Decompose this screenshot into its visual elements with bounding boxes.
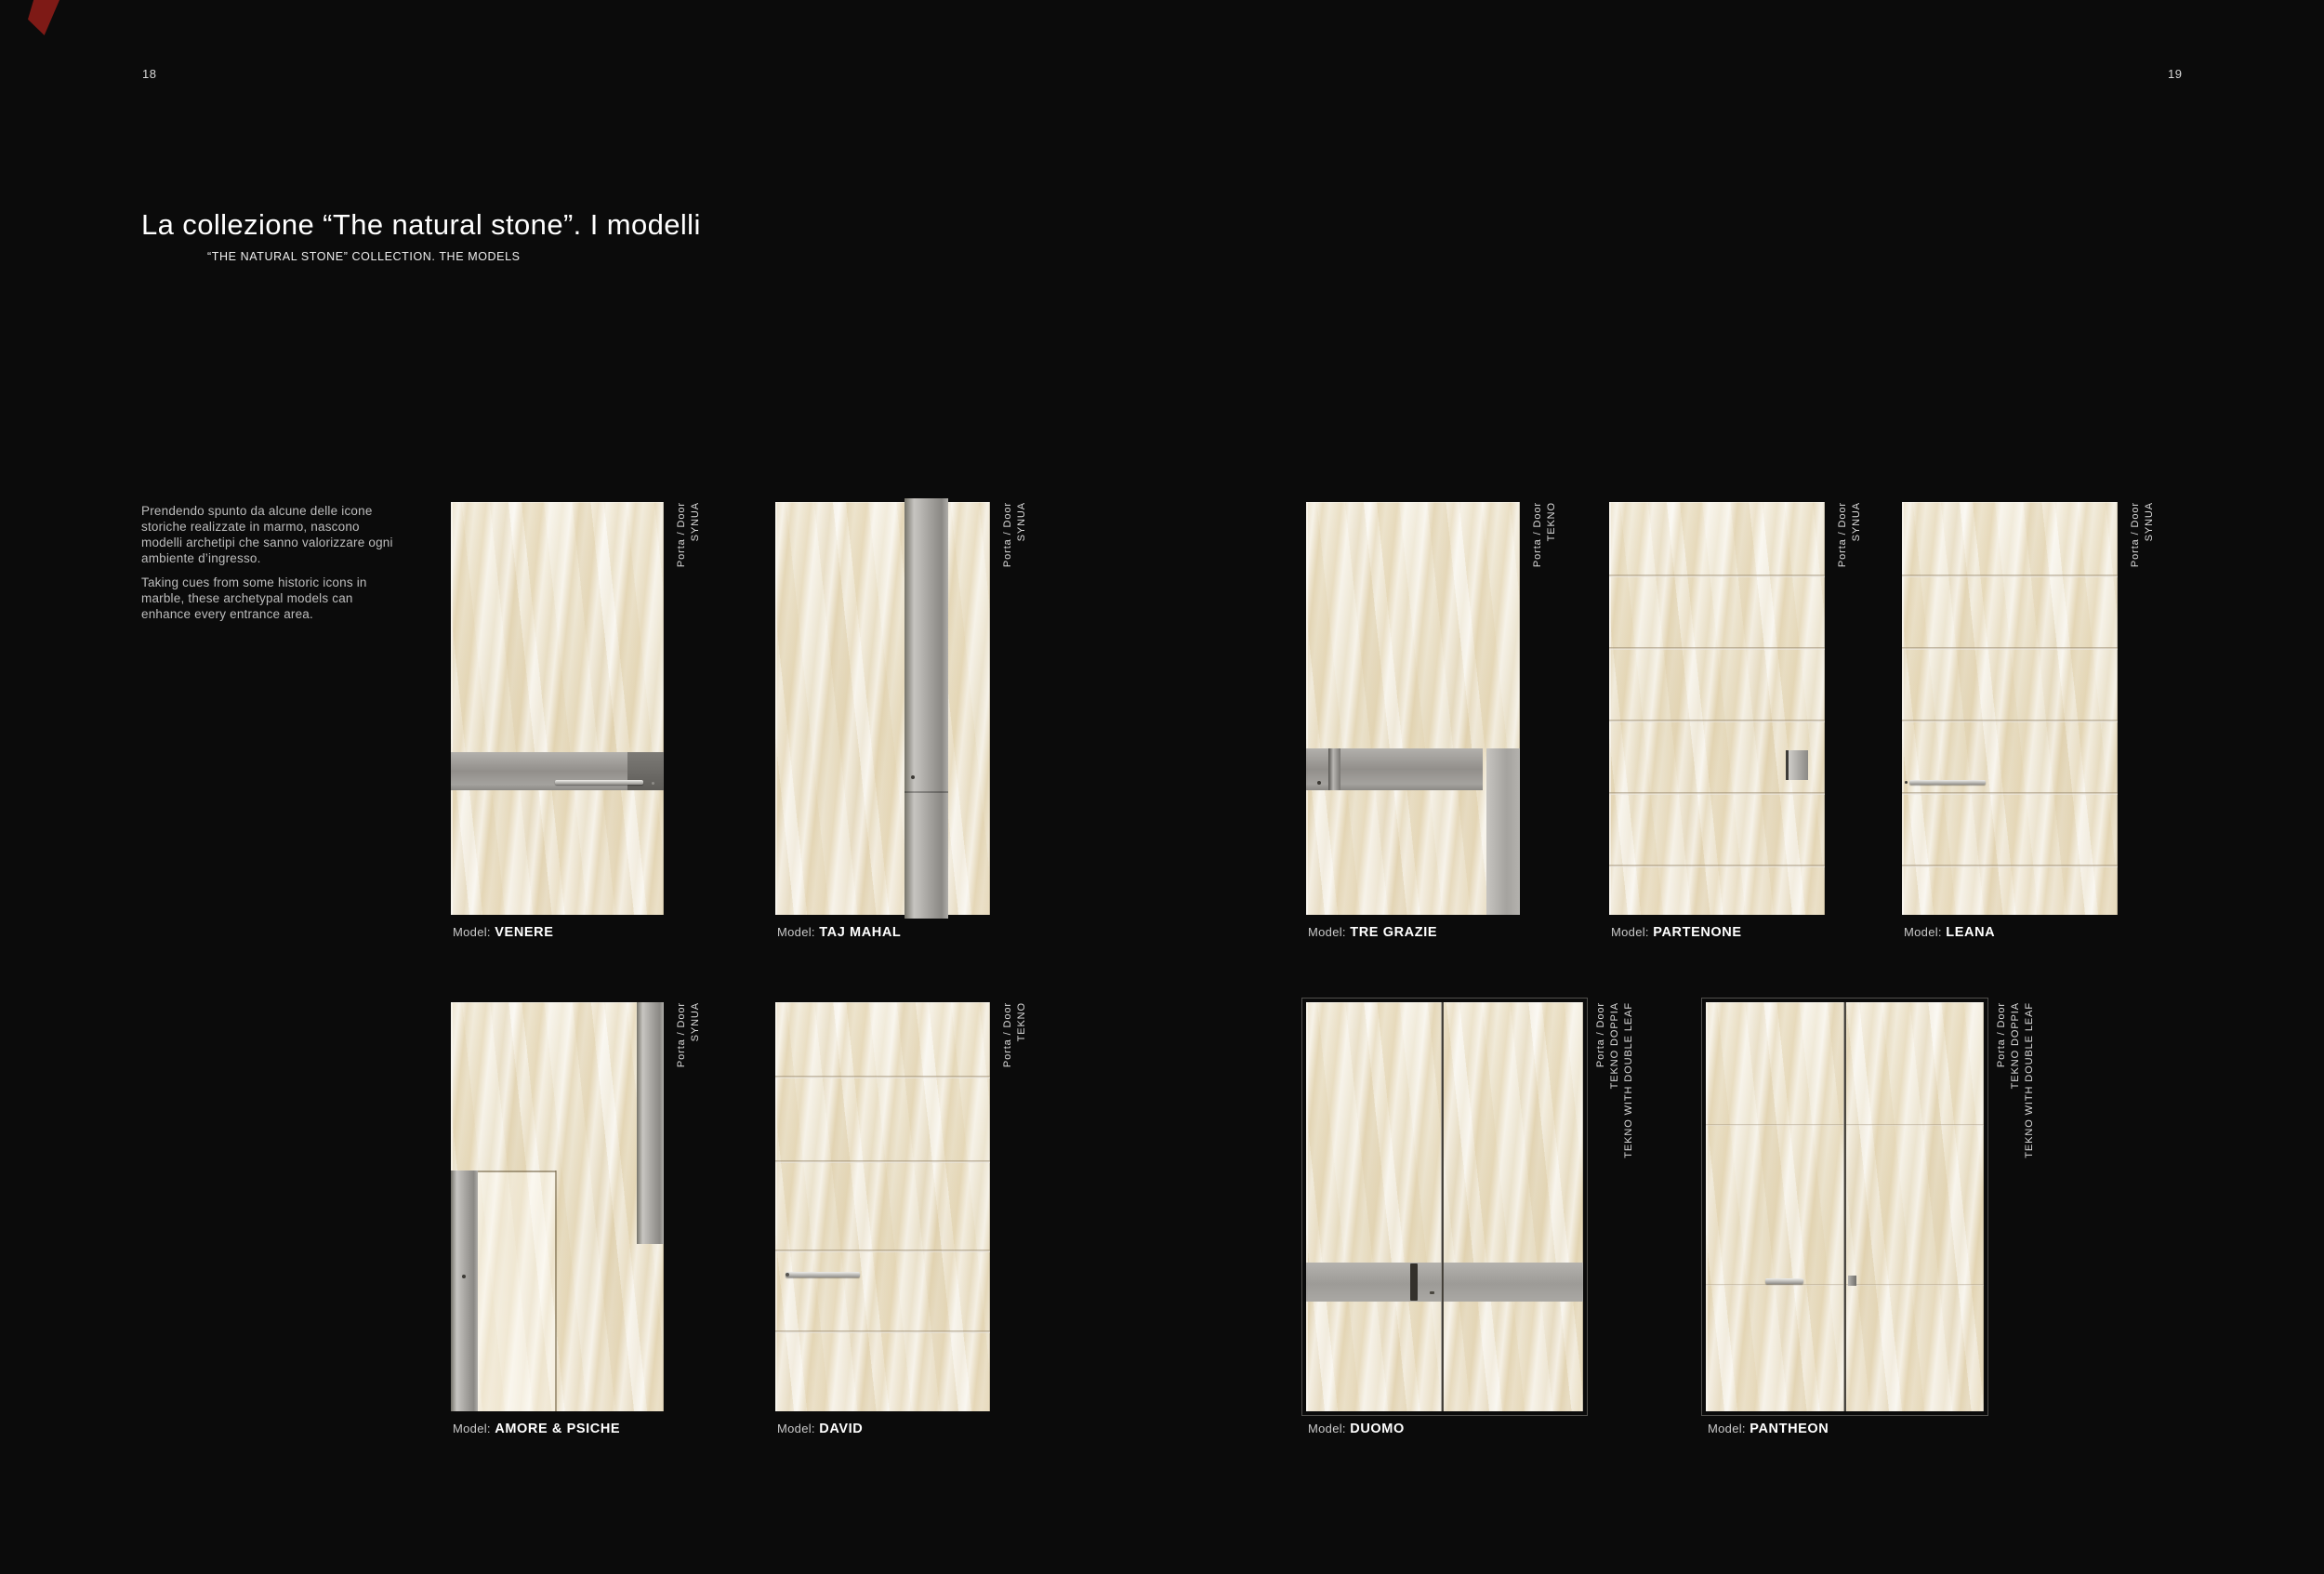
door-card-duomo: Porta / Door TEKNO DOPPIA TEKNO WITH DOU… <box>1306 1002 1583 1411</box>
door-handle <box>1328 748 1340 790</box>
door-type-line: SYNUA <box>2143 502 2157 716</box>
door-type-line: SYNUA <box>1850 502 1864 716</box>
door-type-label: Porta / Door TEKNO DOPPIA TEKNO WITH DOU… <box>1995 1002 2037 1216</box>
door-steel-band <box>1306 1263 1583 1302</box>
model-name: LEANA <box>1946 925 1995 940</box>
model-prefix: Model: <box>453 1422 491 1435</box>
door-type-line: Porta / Door <box>1531 502 1545 716</box>
door-right-steel-strip <box>637 1002 664 1244</box>
door-card-pantheon: Porta / Door TEKNO DOPPIA TEKNO WITH DOU… <box>1706 1002 1984 1411</box>
model-prefix: Model: <box>1308 1422 1346 1435</box>
model-name: DAVID <box>819 1422 863 1436</box>
catalog-spread: 18 19 La collezione “The natural stone”.… <box>0 0 2324 1574</box>
door-lock-dot <box>911 775 915 779</box>
door-groove <box>1902 720 2118 722</box>
door-groove <box>1902 865 2118 867</box>
door-type-line: TEKNO DOPPIA <box>2009 1002 2023 1216</box>
door-type-line: TEKNO <box>1545 502 1559 716</box>
door-handle <box>1909 780 1986 785</box>
door-groove <box>1609 720 1825 722</box>
model-name: VENERE <box>495 925 553 940</box>
door-seam-horizontal <box>478 1171 556 1172</box>
door-type-label: Porta / Door SYNUA <box>675 1002 703 1216</box>
model-name: TAJ MAHAL <box>819 925 901 940</box>
door-type-label: Porta / Door TEKNO <box>1001 1002 1029 1216</box>
model-prefix: Model: <box>1708 1422 1746 1435</box>
door-lock-dot <box>462 1275 466 1278</box>
door-groove <box>1609 575 1825 577</box>
door-type-line: Porta / Door <box>1001 502 1015 716</box>
door-lock-dot <box>652 782 654 785</box>
door-image-partenone <box>1609 502 1825 915</box>
door-card-david: Porta / Door TEKNO Model: DAVID <box>775 1002 990 1411</box>
door-handle-left <box>1765 1278 1803 1284</box>
page-number-right: 19 <box>2168 67 2182 81</box>
door-model-caption: Model: TRE GRAZIE <box>1308 924 1437 941</box>
door-image-david <box>775 1002 990 1411</box>
door-image-amore-psiche <box>451 1002 664 1411</box>
door-groove <box>775 1250 990 1252</box>
door-model-caption: Model: LEANA <box>1904 924 1995 941</box>
door-lock-detail <box>1430 1291 1434 1294</box>
door-inset-panel <box>478 1172 555 1411</box>
door-model-caption: Model: AMORE & PSICHE <box>453 1421 620 1437</box>
corner-red-accent <box>28 0 59 35</box>
door-type-line: Porta / Door <box>1594 1002 1608 1216</box>
door-groove <box>1609 865 1825 867</box>
door-image-taj-mahal <box>775 502 990 915</box>
page-subtitle: “THE NATURAL STONE” COLLECTION. THE MODE… <box>207 250 521 263</box>
model-prefix: Model: <box>453 925 491 939</box>
door-model-caption: Model: VENERE <box>453 924 554 941</box>
door-side-steel-strip <box>1486 748 1520 915</box>
door-model-caption: Model: DAVID <box>777 1421 863 1437</box>
model-name: PARTENONE <box>1653 925 1741 940</box>
door-type-line: Porta / Door <box>1001 1002 1015 1216</box>
model-name: TRE GRAZIE <box>1350 925 1437 940</box>
door-type-line: TEKNO WITH DOUBLE LEAF <box>2023 1002 2037 1216</box>
door-type-line: Porta / Door <box>675 502 689 716</box>
door-handle <box>555 780 643 785</box>
door-type-label: Porta / Door SYNUA <box>675 502 703 716</box>
door-type-line: TEKNO WITH DOUBLE LEAF <box>1622 1002 1636 1216</box>
model-prefix: Model: <box>1904 925 1942 939</box>
door-model-caption: Model: DUOMO <box>1308 1421 1405 1437</box>
door-image-leana <box>1902 502 2118 915</box>
model-name: AMORE & PSICHE <box>495 1422 620 1436</box>
door-type-label: Porta / Door SYNUA <box>2129 502 2157 716</box>
door-groove <box>1902 575 2118 577</box>
model-prefix: Model: <box>1308 925 1346 939</box>
door-model-caption: Model: TAJ MAHAL <box>777 924 901 941</box>
door-type-line: SYNUA <box>689 502 703 716</box>
door-card-partenone: Porta / Door SYNUA Model: PARTENONE <box>1609 502 1825 915</box>
door-image-duomo <box>1306 1002 1583 1411</box>
door-groove <box>1609 792 1825 795</box>
door-lock-dot <box>1317 781 1321 785</box>
door-type-line: Porta / Door <box>675 1002 689 1216</box>
door-left-steel-strip <box>451 1171 478 1411</box>
door-groove <box>775 1330 990 1333</box>
door-image-pantheon <box>1706 1002 1984 1411</box>
door-card-tre-grazie: Porta / Door TEKNO Model: TRE GRAZIE <box>1306 502 1520 915</box>
door-model-caption: Model: PARTENONE <box>1611 924 1742 941</box>
door-card-venere: Porta / Door SYNUA Model: VENERE <box>451 502 664 915</box>
intro-text: Prendendo spunto da alcune delle icone s… <box>141 503 398 630</box>
door-card-leana: Porta / Door SYNUA Model: LEANA <box>1902 502 2118 915</box>
model-name: PANTHEON <box>1750 1422 1829 1436</box>
door-type-line: TEKNO DOPPIA <box>1608 1002 1622 1216</box>
door-model-caption: Model: PANTHEON <box>1708 1421 1829 1437</box>
door-handle <box>1410 1263 1418 1301</box>
door-type-label: Porta / Door SYNUA <box>1836 502 1864 716</box>
door-type-line: Porta / Door <box>2129 502 2143 716</box>
door-groove <box>1902 647 2118 650</box>
page-number-left: 18 <box>142 67 156 81</box>
door-groove <box>1609 647 1825 650</box>
door-type-label: Porta / Door SYNUA <box>1001 502 1029 716</box>
page-title: La collezione “The natural stone”. I mod… <box>141 208 701 242</box>
door-image-tre-grazie <box>1306 502 1520 915</box>
model-prefix: Model: <box>777 925 815 939</box>
door-type-line: SYNUA <box>1015 502 1029 716</box>
door-handle <box>1786 750 1808 780</box>
door-type-label: Porta / Door TEKNO <box>1531 502 1559 716</box>
door-type-line: Porta / Door <box>1995 1002 2009 1216</box>
door-type-line: Porta / Door <box>1836 502 1850 716</box>
door-type-label: Porta / Door TEKNO DOPPIA TEKNO WITH DOU… <box>1594 1002 1636 1216</box>
intro-paragraph-english: Taking cues from some historic icons in … <box>141 575 398 622</box>
door-type-line: SYNUA <box>689 1002 703 1216</box>
door-groove <box>1902 792 2118 795</box>
model-prefix: Model: <box>1611 925 1649 939</box>
door-handle-right <box>1848 1276 1856 1286</box>
door-seam-vertical <box>555 1171 557 1411</box>
door-steel-pillar <box>905 498 948 919</box>
door-groove <box>775 1076 990 1078</box>
door-handle <box>786 1272 860 1277</box>
door-groove <box>775 1160 990 1163</box>
model-name: DUOMO <box>1350 1422 1405 1436</box>
door-pillar-seam <box>905 791 948 793</box>
door-card-taj-mahal: Porta / Door SYNUA Model: TAJ MAHAL <box>775 502 990 915</box>
door-card-amore-psiche: Porta / Door SYNUA Model: AMORE & PSICHE <box>451 1002 664 1411</box>
door-image-venere <box>451 502 664 915</box>
door-handle-mount <box>786 1273 789 1276</box>
model-prefix: Model: <box>777 1422 815 1435</box>
door-leaf-split <box>1843 1002 1846 1411</box>
door-handle-mount <box>1905 781 1908 784</box>
door-leaf-split <box>1441 1002 1444 1411</box>
door-type-line: TEKNO <box>1015 1002 1029 1216</box>
intro-paragraph-italian: Prendendo spunto da alcune delle icone s… <box>141 503 398 566</box>
